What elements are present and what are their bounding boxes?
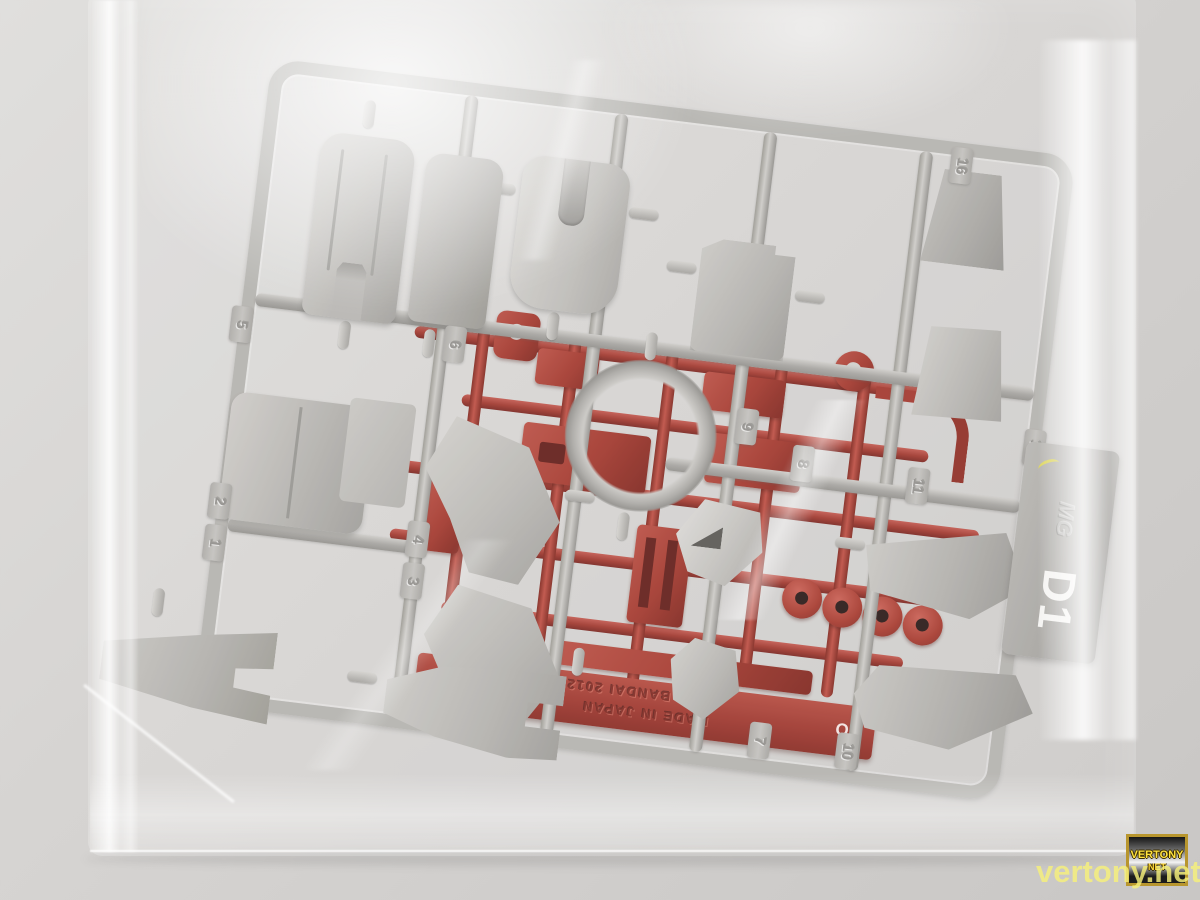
photo-canvas: { "scene": { "description": "Clear plast… <box>0 0 1200 900</box>
watermark-site-text: vertony.net <box>1036 854 1200 890</box>
plastic-bag <box>88 0 1136 856</box>
